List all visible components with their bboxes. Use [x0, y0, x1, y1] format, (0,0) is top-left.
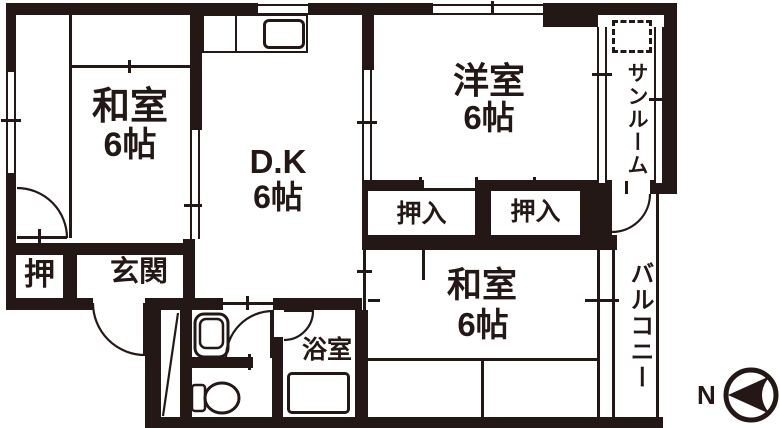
compass-icon: N: [690, 366, 780, 428]
washroom-door-arc: [226, 311, 273, 358]
room-label-balcony: バルコニー: [617, 243, 651, 408]
room-label-washitsu-tl: 和室: [70, 88, 190, 126]
floor-plan: 和室 6帖 D.K 6帖 洋室 6帖 サンルーム 和室 6帖 バルコニー 玄関 …: [0, 0, 780, 428]
corridor-diagonal-line: [163, 313, 178, 416]
room-size-washitsu-br: 6帖: [423, 308, 543, 341]
genkan-door-arc: [93, 303, 145, 355]
room-label-dk: D.K: [228, 145, 328, 178]
room-label-bathroom: 浴室: [295, 338, 359, 363]
room-size-washitsu-tl: 6帖: [70, 128, 190, 162]
room-label-sunroom: サンルーム: [613, 55, 647, 183]
room-label-oshi: 押: [16, 259, 63, 290]
room-size-dk: 6帖: [228, 181, 328, 213]
room-size-youshitsu: 6帖: [429, 101, 549, 134]
room-label-washitsu-br: 和室: [422, 268, 542, 303]
room-label-oshiire-left: 押入: [365, 202, 478, 227]
room-label-genkan: 玄関: [94, 258, 184, 287]
compass-needle: [728, 376, 770, 414]
room-label-youshitsu: 洋室: [429, 63, 549, 99]
room-label-oshiire-right: 押入: [488, 200, 583, 225]
sunroom-balcony-door-arc: [612, 194, 650, 232]
compass-north-label: N: [697, 380, 716, 410]
washitsu-tl-door-arc: [17, 188, 67, 238]
